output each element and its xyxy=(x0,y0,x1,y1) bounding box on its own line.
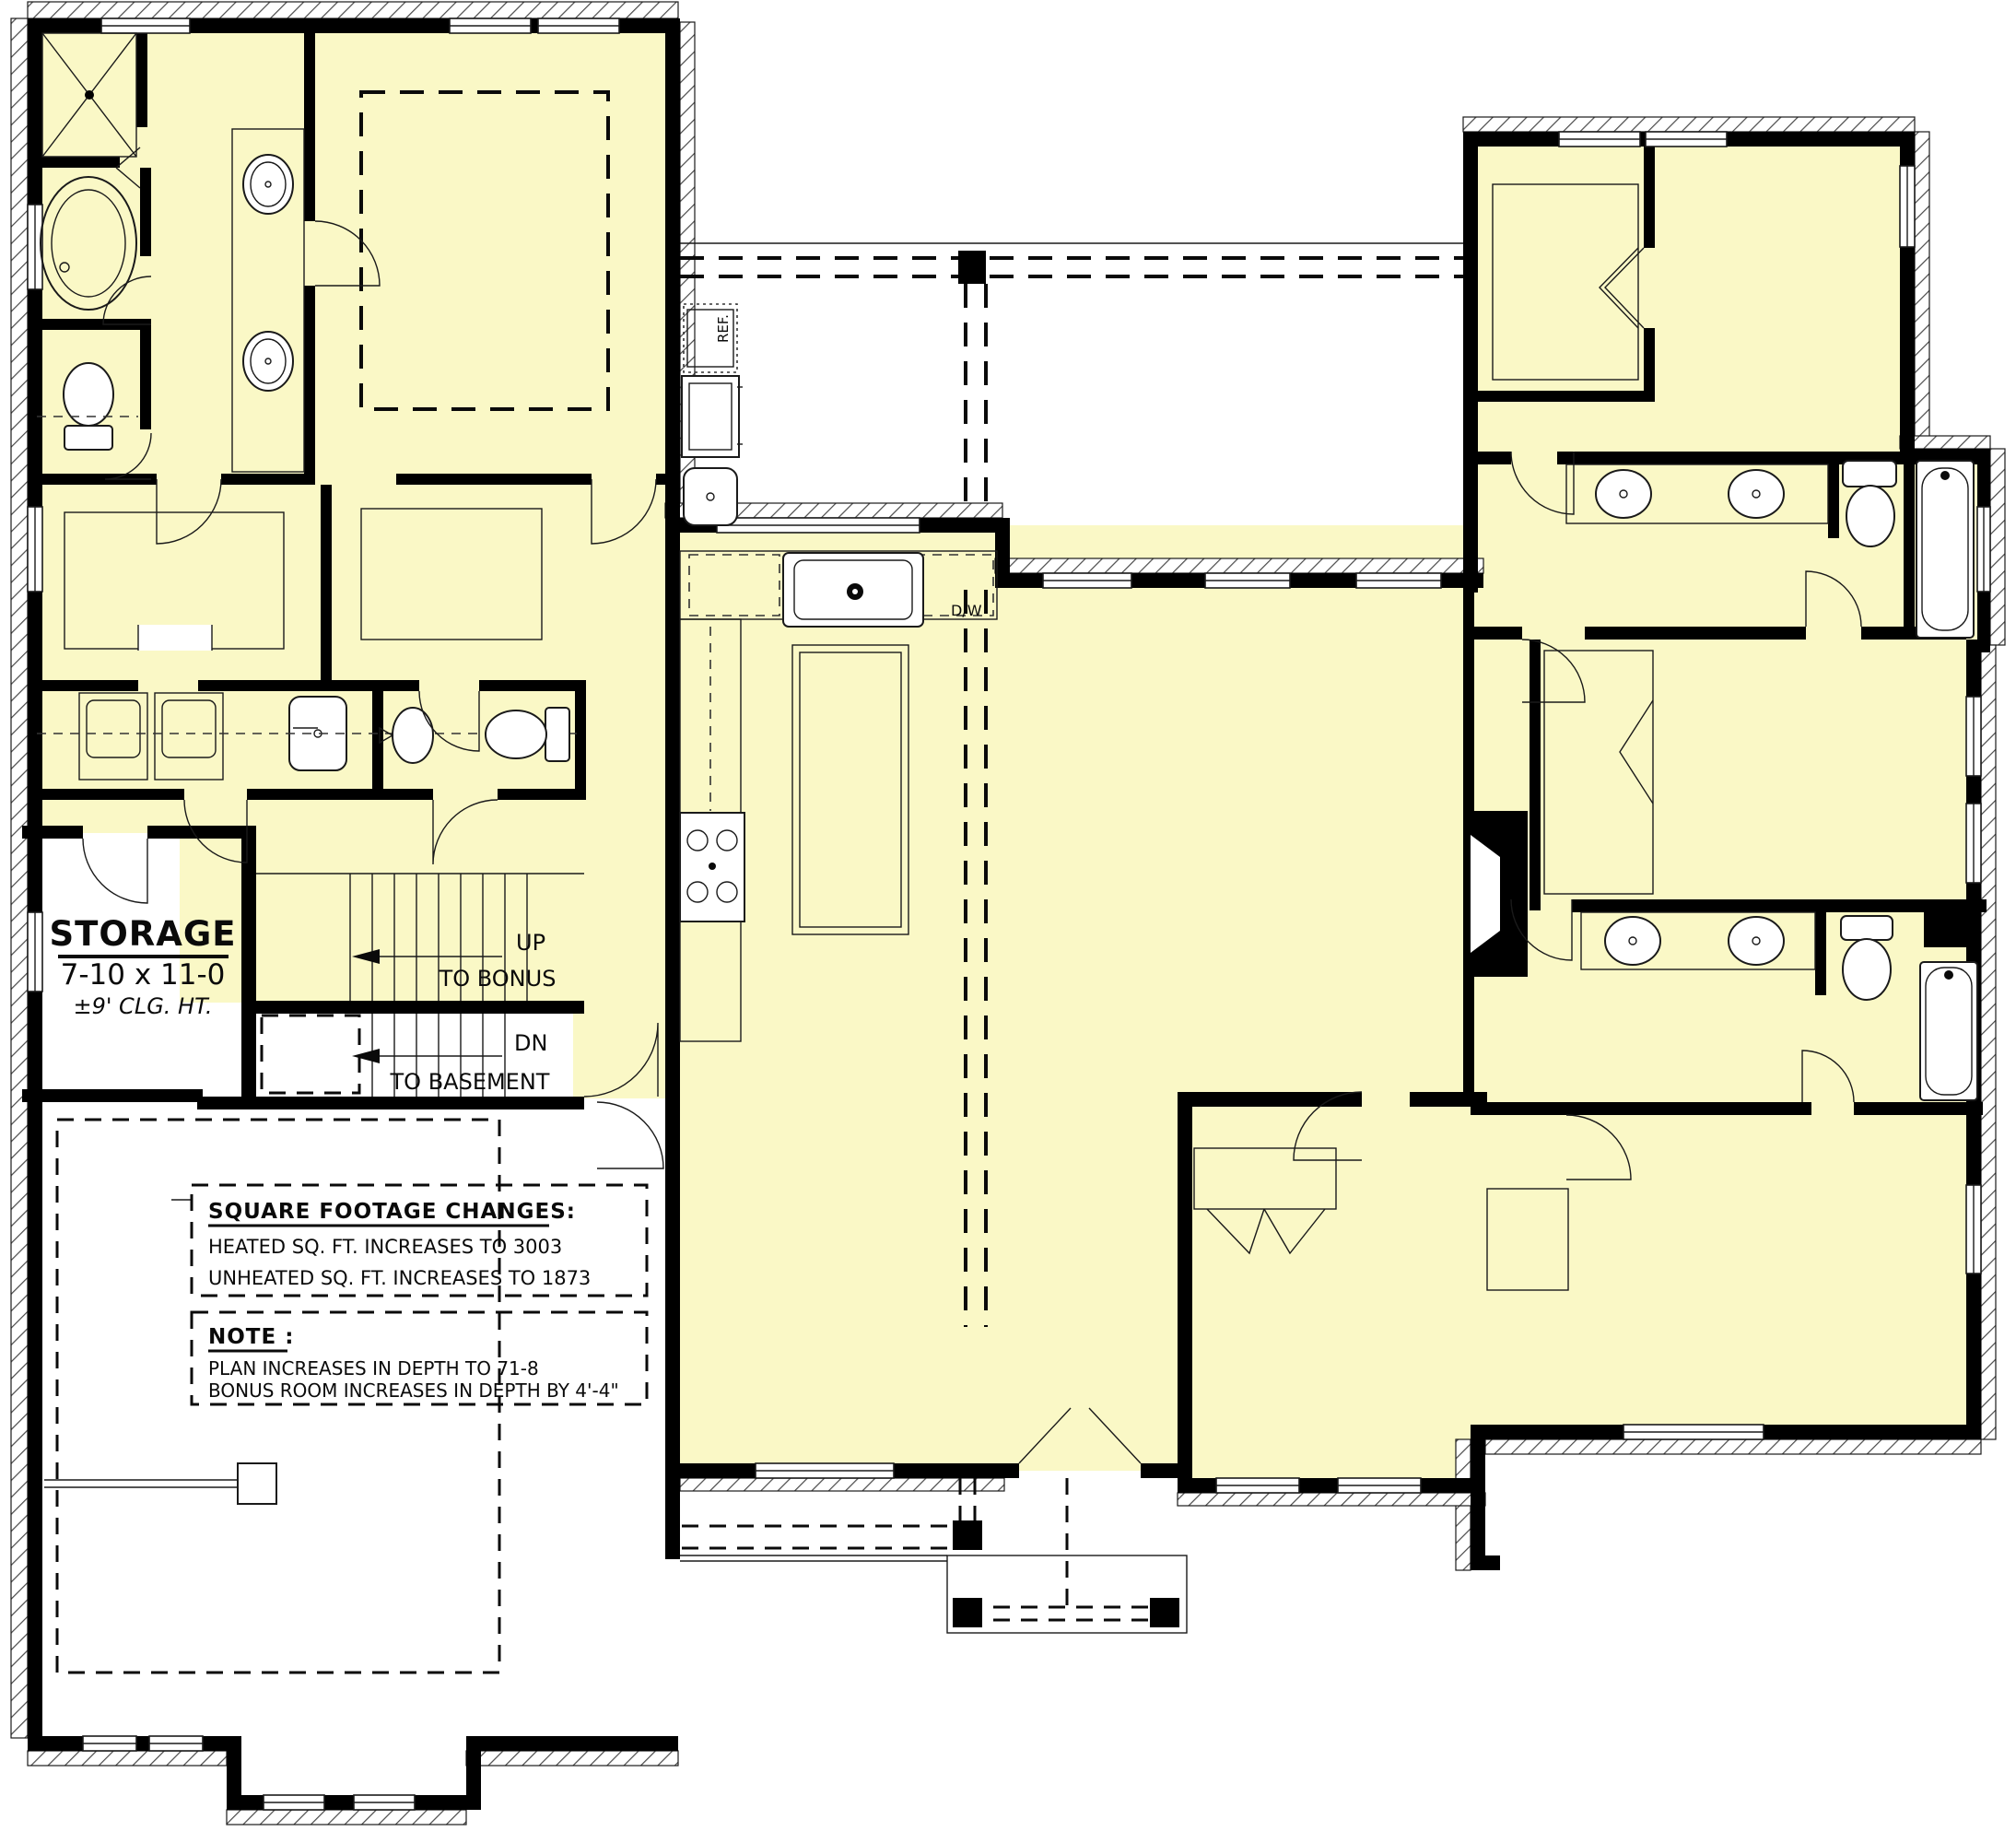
sqft-title: SQUARE FOOTAGE CHANGES: xyxy=(208,1200,576,1224)
window xyxy=(1966,1185,1981,1274)
stair-up-label: UP xyxy=(516,930,545,956)
note-boxes: SQUARE FOOTAGE CHANGES: HEATED SQ. FT. I… xyxy=(171,1185,647,1404)
window xyxy=(450,18,531,33)
note-title: NOTE : xyxy=(208,1325,294,1349)
stair-up-to-label: TO BONUS xyxy=(439,966,557,992)
storage-title: STORAGE xyxy=(49,914,236,954)
window xyxy=(1205,573,1290,588)
window xyxy=(101,18,190,33)
window xyxy=(717,518,920,533)
fireplace xyxy=(1463,811,1528,977)
ref-label: REF. xyxy=(715,314,732,343)
dw-label: D/W xyxy=(951,602,982,619)
window xyxy=(1966,697,1981,776)
stair-dn-label: DN xyxy=(514,1030,547,1056)
window xyxy=(1216,1478,1299,1493)
window xyxy=(149,1736,203,1751)
window xyxy=(1356,573,1441,588)
note-line1: PLAN INCREASES IN DEPTH TO 71-8 xyxy=(208,1357,539,1379)
window xyxy=(1338,1478,1421,1493)
window xyxy=(1900,166,1915,247)
sqft-line1: HEATED SQ. FT. INCREASES TO 3003 xyxy=(208,1236,562,1258)
floor-plan-drawing: STORAGE 7-10 x 11-0 ±9' CLG. HT. UP TO B… xyxy=(0,0,2016,1843)
window xyxy=(28,912,42,992)
window xyxy=(264,1795,324,1810)
window xyxy=(1043,573,1131,588)
window xyxy=(756,1463,894,1478)
window xyxy=(1646,132,1727,147)
front-porch xyxy=(680,1478,1187,1633)
sqft-line2: UNHEATED SQ. FT. INCREASES TO 1873 xyxy=(208,1267,591,1289)
window xyxy=(83,1736,136,1751)
window xyxy=(538,18,619,33)
window xyxy=(1559,132,1640,147)
window xyxy=(354,1795,415,1810)
window xyxy=(1977,507,1990,592)
note-line2: BONUS ROOM INCREASES IN DEPTH BY 4'-4" xyxy=(208,1379,619,1402)
stair-dn-to-label: TO BASEMENT xyxy=(390,1069,550,1095)
window xyxy=(28,507,42,592)
floor-plan-page: STORAGE 7-10 x 11-0 ±9' CLG. HT. UP TO B… xyxy=(0,0,2016,1843)
storage-dimensions: 7-10 x 11-0 xyxy=(61,958,226,992)
range xyxy=(680,813,744,921)
storage-ceiling: ±9' CLG. HT. xyxy=(73,993,212,1019)
window xyxy=(1966,804,1981,883)
window xyxy=(1623,1425,1764,1439)
